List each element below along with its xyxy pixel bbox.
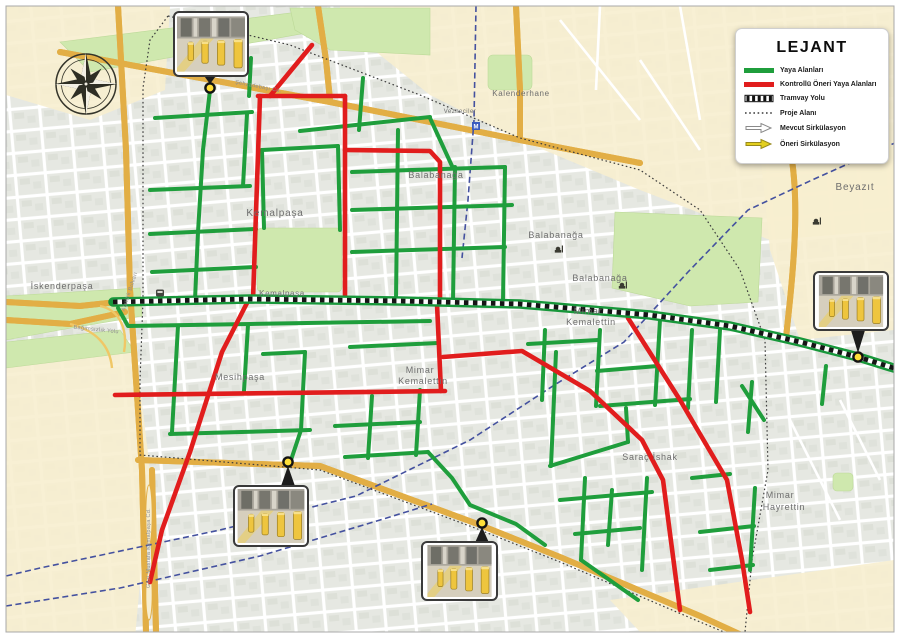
legend-item: Mevcut Sirkülasyon (744, 122, 880, 134)
legend-item: Öneri Sirkülasyon (744, 138, 880, 150)
bollard-pin (283, 457, 292, 466)
map-label: Beyazıt (836, 182, 875, 193)
map-label: Balabanağa (528, 230, 583, 240)
svg-text:M: M (474, 124, 479, 130)
pedestrian-route (263, 352, 305, 354)
map-label: Saraç İshak (622, 452, 677, 462)
park (488, 55, 532, 90)
bus-icon (156, 290, 164, 297)
bollard-pin (205, 83, 214, 92)
legend-item-label: Kontrollü Öneri Yaya Alanları (780, 81, 876, 88)
pedestrian-route (396, 130, 398, 300)
legend-swatch-red-line (744, 79, 774, 89)
map-label: Kemalettin (398, 376, 448, 386)
bollard-pin (477, 518, 486, 527)
park (833, 473, 853, 491)
park (257, 228, 342, 292)
pedestrian-route (338, 146, 340, 230)
map-label: İskenderpaşa (31, 281, 94, 291)
legend-swatch-green-line (744, 65, 774, 75)
legend-item: Yaya Alanları (744, 65, 880, 75)
legend-items: Yaya AlanlarıKontrollü Öneri Yaya Alanla… (744, 65, 880, 150)
map-label: Balabanağa (408, 170, 463, 180)
legend-title: LEJANT (744, 39, 880, 57)
legend-swatch-arrow-yellow (744, 138, 774, 150)
map-label: Mesihpaşa (215, 372, 265, 382)
legend-item: Proje Alanı (744, 108, 880, 118)
legend-swatch-dotted-line (744, 108, 774, 118)
map-label: Kemalpaşa (259, 289, 305, 298)
legend-panel: LEJANT Yaya AlanlarıKontrollü Öneri Yaya… (735, 28, 889, 164)
park (612, 212, 762, 306)
map-label: Balabanağa (572, 273, 627, 283)
bollard-pin (853, 352, 862, 361)
metro-icon: M (472, 122, 480, 130)
map-label: Mimar (406, 365, 435, 375)
legend-item-label: Mevcut Sirkülasyon (780, 125, 846, 132)
map-label: Kemalettin (566, 317, 616, 327)
legend-item-label: Proje Alanı (780, 110, 816, 117)
pedestrian-route (503, 167, 505, 302)
district-zone (6, 345, 150, 638)
map-label: Mimar (766, 490, 795, 500)
map-label: Vezneciler (444, 109, 476, 115)
compass-rose-icon (55, 53, 117, 115)
road-label: Gazi Mustafa Kemalpaşa Cd. (146, 508, 152, 588)
legend-item-label: Öneri Sirkülasyon (780, 141, 840, 148)
pedestrian-route (453, 167, 455, 302)
legend-swatch-checker-line (744, 93, 774, 104)
map-label: Mimar (574, 306, 603, 316)
bollard-photo-callout (174, 12, 248, 84)
legend-item: Kontrollü Öneri Yaya Alanları (744, 79, 880, 89)
map-poster: M KemalpaşaKemalpaşaBalabanağaBalabanağa… (0, 0, 900, 638)
legend-swatch-arrow-outline (744, 122, 774, 134)
legend-item-label: Yaya Alanları (780, 67, 823, 74)
legend-item: Tramvay Yolu (744, 93, 880, 104)
map-label: Kalenderhane (492, 89, 550, 98)
map-label: Kemalpaşa (246, 208, 303, 219)
legend-item-label: Tramvay Yolu (780, 95, 825, 102)
pedestrian-route (249, 58, 251, 96)
map-label: Hayrettin (763, 502, 806, 512)
